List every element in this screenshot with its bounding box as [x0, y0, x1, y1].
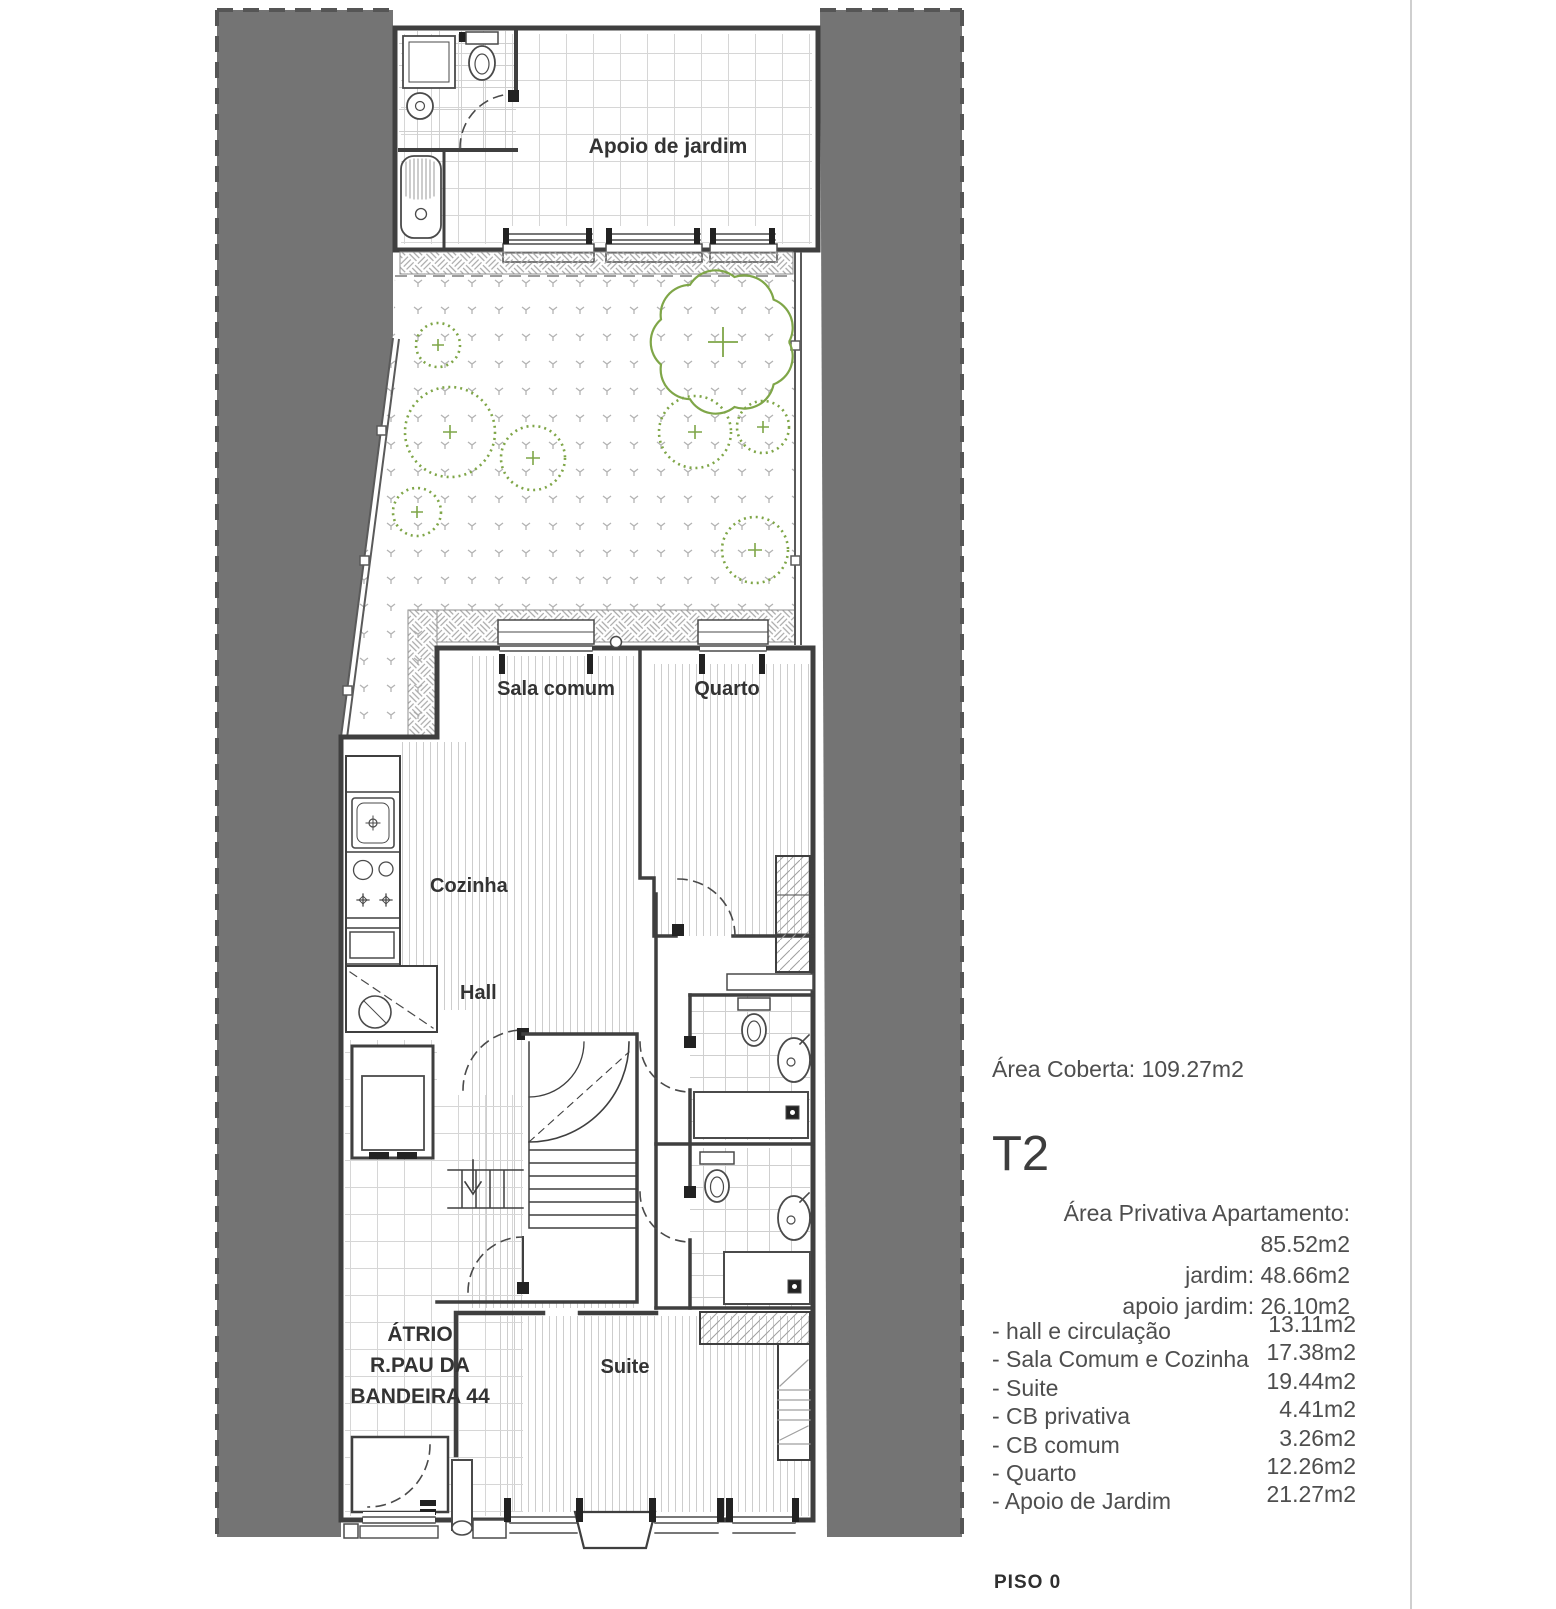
neighbor-building-right	[820, 10, 962, 1537]
private-area-line: Área Privativa Apartamento: 85.52m2	[992, 1198, 1350, 1260]
room-label-atrio-1: ÁTRIO	[387, 1323, 452, 1346]
laundry-corner	[346, 966, 437, 1032]
boundary-marker	[344, 1524, 358, 1538]
door-jamb	[517, 1282, 529, 1294]
room-area-value: 4.41m2	[1279, 1396, 1356, 1423]
room-name: - hall e circulação	[992, 1318, 1171, 1345]
doorstep	[473, 1520, 506, 1538]
bathtub-icon	[401, 156, 441, 238]
round-sink-icon	[407, 93, 433, 119]
room-label-atrio-2: R.PAU DA	[370, 1354, 470, 1377]
shower-tray-icon	[403, 36, 455, 88]
room-label-suite: Suite	[601, 1356, 650, 1378]
typology-title: T2	[992, 1126, 1049, 1182]
room-label-quarto: Quarto	[694, 678, 760, 700]
private-area-line: jardim: 48.66m2	[992, 1260, 1350, 1291]
room-label-cozinha: Cozinha	[430, 875, 509, 897]
room-label-apoio: Apoio de jardim	[589, 135, 748, 158]
paving-strip-top	[400, 252, 793, 274]
quarto-wardrobe	[776, 856, 810, 972]
paving-strip-side	[408, 610, 437, 750]
entrance-vestibule	[352, 1437, 448, 1515]
toilet-icon	[700, 1152, 734, 1164]
room-area-value: 13.11m2	[1268, 1311, 1356, 1338]
room-name: - Quarto	[992, 1460, 1076, 1487]
room-area-value: 19.44m2	[1266, 1368, 1356, 1395]
facade-column	[452, 1460, 472, 1535]
door-jamb	[684, 1036, 696, 1048]
door-jamb	[684, 1186, 696, 1198]
oven-icon	[350, 932, 394, 958]
bay-projection	[575, 1512, 655, 1548]
room-area-list: - hall e circulação13.11m2 - Sala Comum …	[992, 1318, 1356, 1517]
room-area-value: 12.26m2	[1266, 1453, 1356, 1480]
room-area-value: 21.27m2	[1266, 1481, 1356, 1508]
elevator	[352, 1046, 433, 1159]
room-name: - Suite	[992, 1375, 1058, 1402]
room-area-value: 3.26m2	[1279, 1425, 1356, 1452]
toilet-icon	[738, 998, 770, 1010]
room-name: - CB privativa	[992, 1403, 1130, 1430]
room-name: - CB comum	[992, 1432, 1120, 1459]
survey-point-icon	[611, 637, 622, 648]
covered-area-text: Área Coberta: 109.27m2	[992, 1056, 1244, 1083]
room-label-sala: Sala comum	[497, 678, 615, 700]
room-name: - Apoio de Jardim	[992, 1488, 1171, 1515]
floor-title: PISO 0	[994, 1572, 1061, 1594]
room-area-value: 17.38m2	[1266, 1339, 1356, 1366]
bathtub-icon	[724, 1252, 810, 1304]
door-jamb	[672, 924, 684, 936]
door-jamb	[508, 90, 519, 102]
room-label-atrio-3: BANDEIRA 44	[350, 1385, 490, 1408]
apoio-de-jardim-building: Apoio de jardim	[395, 28, 818, 262]
private-areas-block: Área Privativa Apartamento: 85.52m2 jard…	[992, 1198, 1350, 1322]
plot-wall-right	[795, 252, 801, 645]
room-area-row: - Apoio de Jardim21.27m2	[992, 1488, 1356, 1516]
room-name: - Sala Comum e Cozinha	[992, 1346, 1249, 1373]
toilet-icon	[466, 32, 498, 80]
shelf	[727, 974, 813, 990]
room-label-hall: Hall	[460, 982, 497, 1004]
main-building: Sala comum Quarto Cozinha Hall ÁTRIO R.P…	[341, 620, 813, 1548]
suite-floor	[497, 1316, 809, 1516]
